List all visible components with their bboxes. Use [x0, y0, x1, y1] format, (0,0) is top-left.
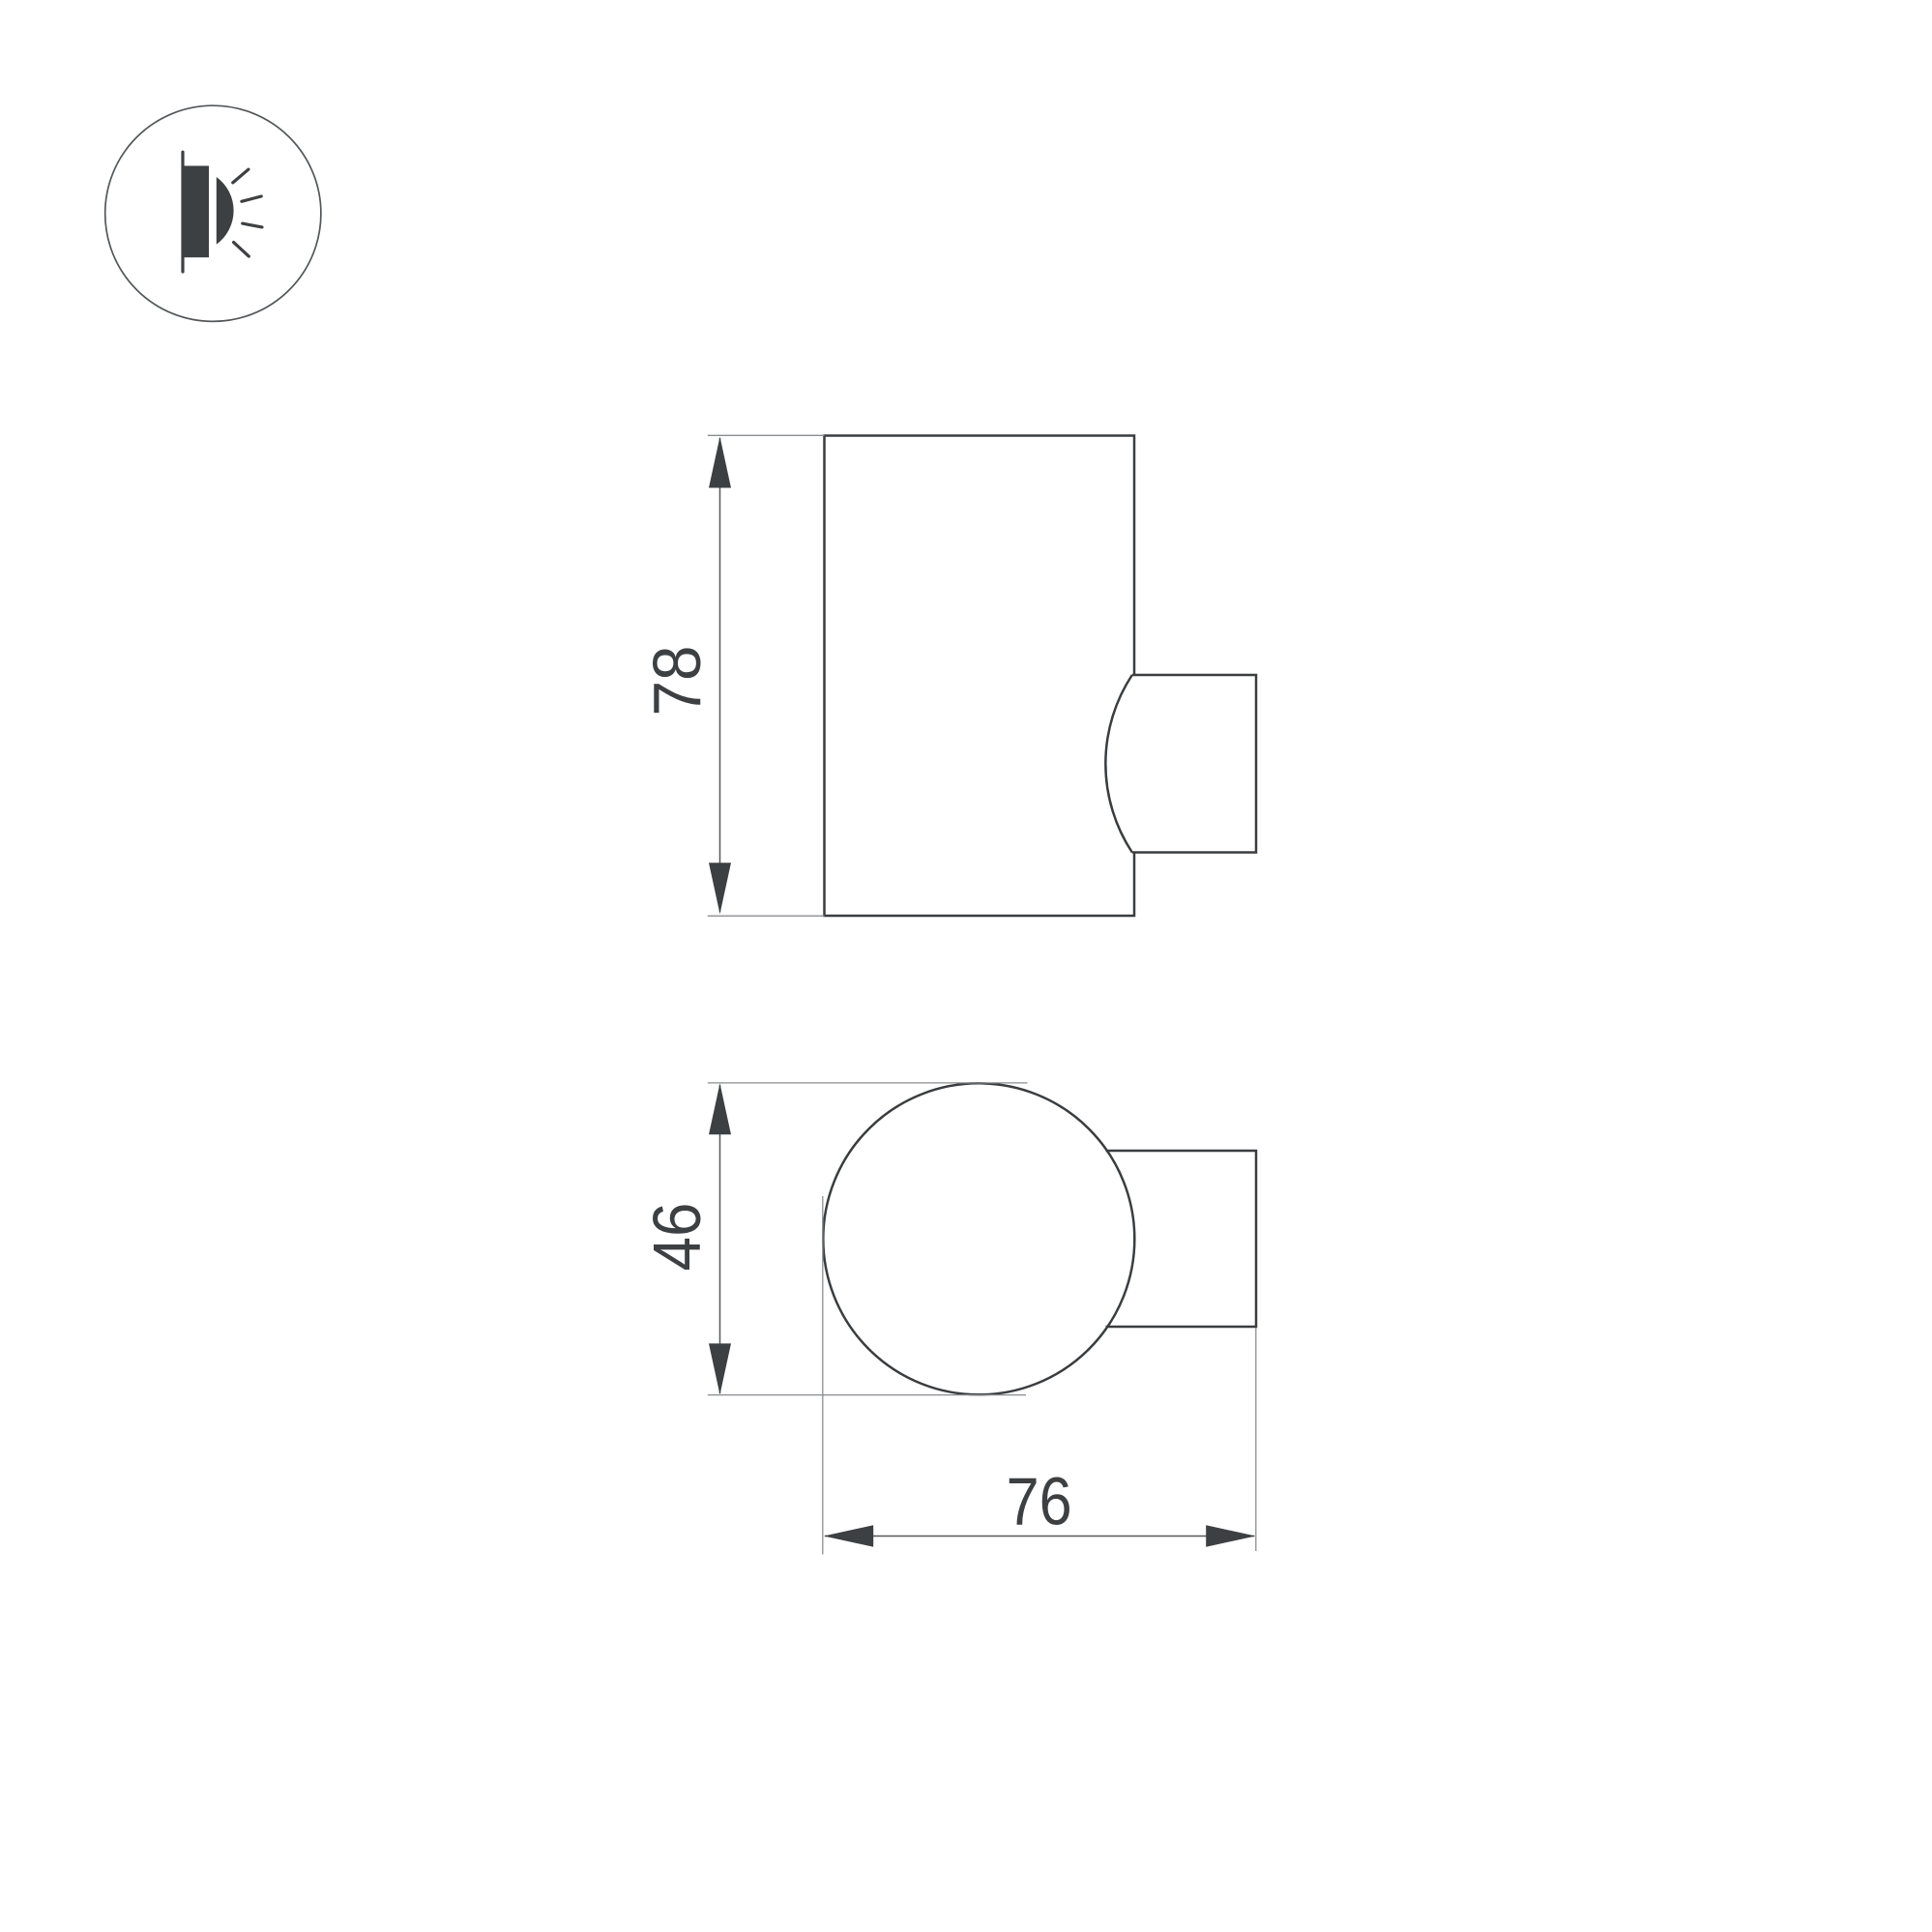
svg-text:76: 76 — [1007, 1464, 1072, 1539]
svg-text:78: 78 — [639, 646, 715, 717]
svg-text:46: 46 — [639, 1203, 715, 1272]
